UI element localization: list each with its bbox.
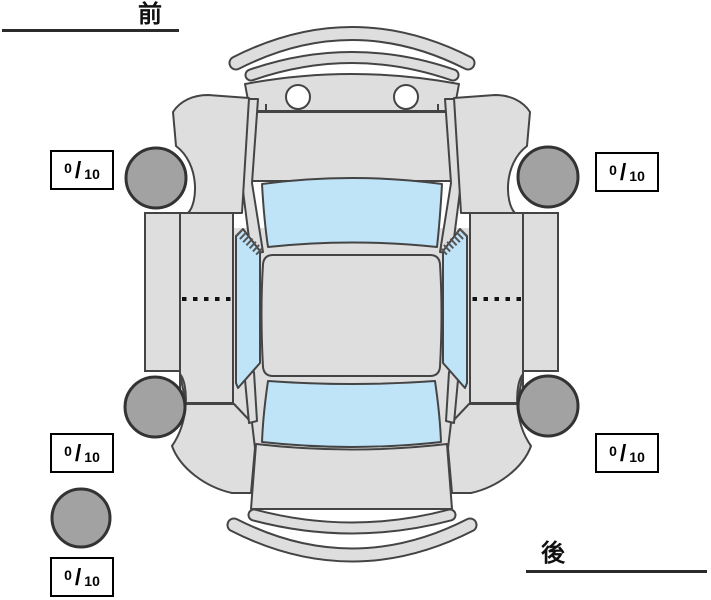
rear-window xyxy=(262,381,441,447)
tire-rear-right xyxy=(518,376,578,436)
front-label: 前 xyxy=(138,3,163,27)
score-value: 0 xyxy=(609,443,617,459)
score-value: 0 xyxy=(609,162,617,178)
roof xyxy=(262,255,442,376)
headlight-right-icon xyxy=(394,85,418,109)
tire-rear-left xyxy=(125,377,185,437)
score-value: 0 xyxy=(64,567,72,583)
tire-score-rear-left: 0/10 xyxy=(50,433,114,473)
spare-tire xyxy=(52,489,110,547)
front-label-underline xyxy=(2,29,179,32)
front-panel xyxy=(245,74,459,111)
score-slash: / xyxy=(75,442,81,465)
car-top-view-svg xyxy=(0,0,711,600)
hood xyxy=(244,112,460,181)
score-slash: / xyxy=(75,159,81,182)
score-max: 10 xyxy=(84,573,100,589)
score-slash: / xyxy=(620,161,626,184)
rear-label: 後 xyxy=(541,542,566,566)
tire-score-front-right: 0/10 xyxy=(595,152,659,192)
windshield xyxy=(262,178,442,247)
rear-label-underline xyxy=(526,570,707,573)
score-max: 10 xyxy=(84,449,100,465)
car-condition-diagram: 前 後 0/10 0/10 0/10 0/10 0/10 xyxy=(0,0,711,600)
tire-front-left xyxy=(126,148,186,208)
tire-score-front-left: 0/10 xyxy=(50,150,114,190)
tire-front-right xyxy=(518,147,578,207)
score-value: 0 xyxy=(64,443,72,459)
score-max: 10 xyxy=(629,168,645,184)
tire-score-spare: 0/10 xyxy=(50,557,114,597)
score-slash: / xyxy=(75,566,81,589)
trunk xyxy=(251,444,452,509)
tire-score-rear-right: 0/10 xyxy=(595,433,659,473)
score-max: 10 xyxy=(629,449,645,465)
score-max: 10 xyxy=(84,166,100,182)
score-value: 0 xyxy=(64,160,72,176)
headlight-left-icon xyxy=(286,85,310,109)
score-slash: / xyxy=(620,442,626,465)
